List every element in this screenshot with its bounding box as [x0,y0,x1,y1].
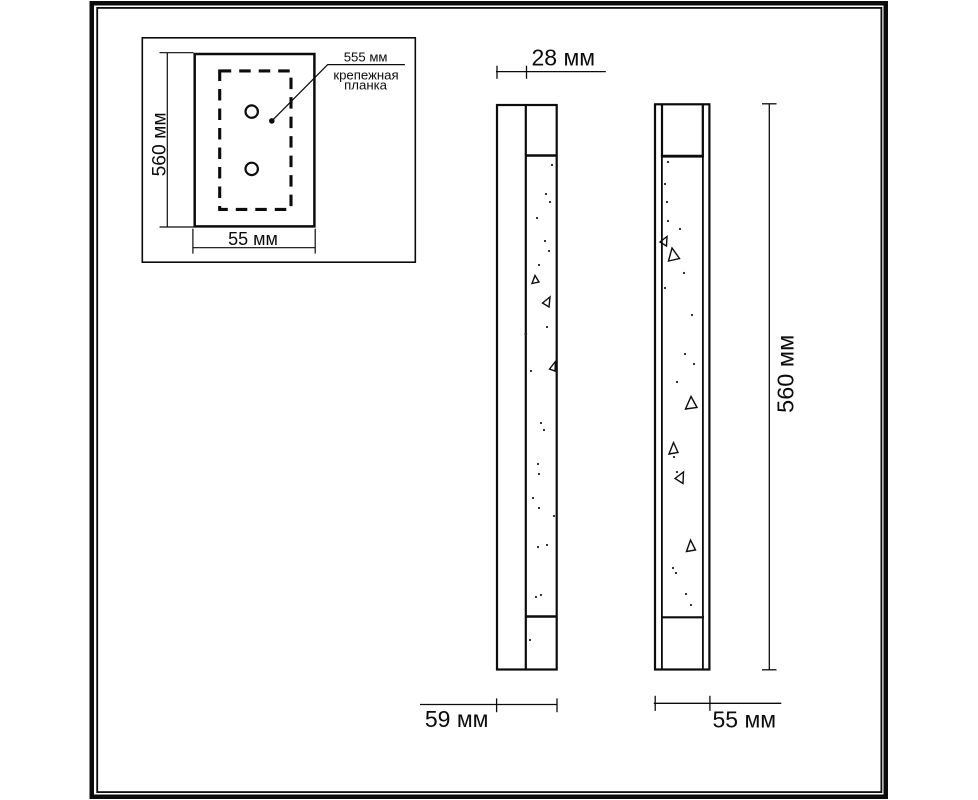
svg-text:560 мм: 560 мм [773,335,799,413]
svg-text:59 мм: 59 мм [425,706,489,732]
svg-text:55 мм: 55 мм [713,706,777,732]
svg-text:55 мм: 55 мм [228,229,278,249]
svg-text:планка: планка [344,78,388,93]
svg-text:555 мм: 555 мм [344,50,388,65]
svg-text:28 мм: 28 мм [532,45,596,71]
svg-text:560 мм: 560 мм [150,112,171,176]
